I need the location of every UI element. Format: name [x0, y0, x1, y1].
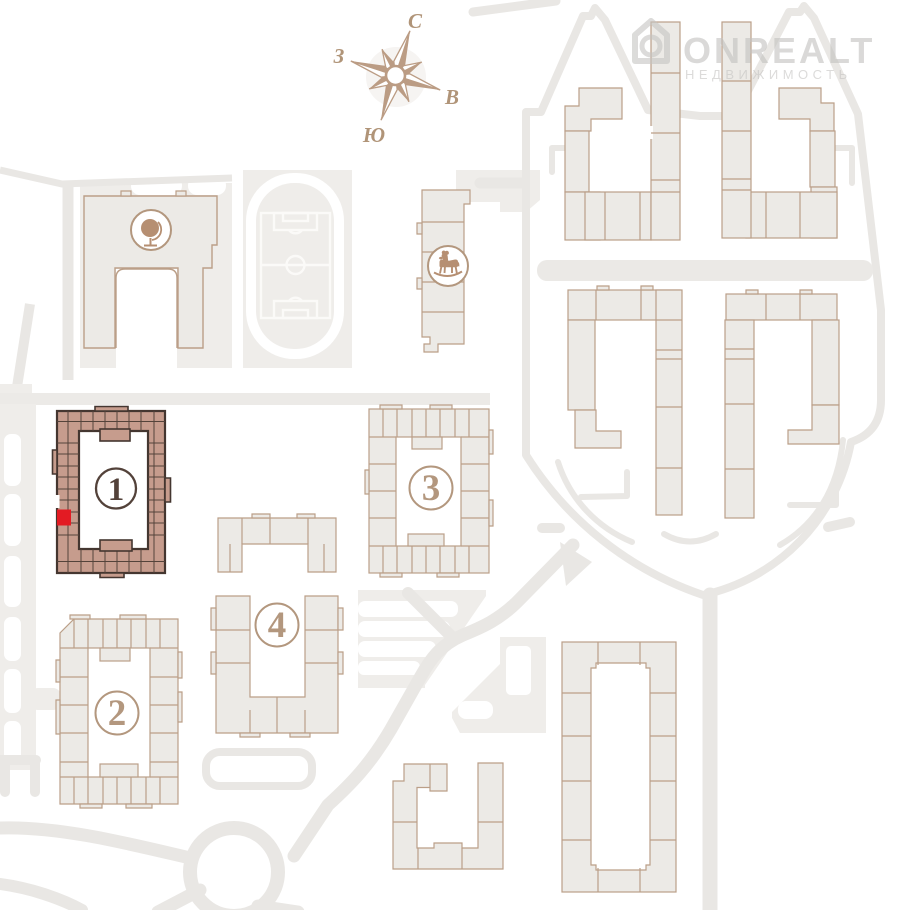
svg-text:Ю: Ю: [362, 123, 385, 147]
svg-text:4: 4: [268, 605, 287, 646]
svg-text:В: В: [444, 85, 459, 109]
svg-text:НЕДВИЖИМОСТЬ: НЕДВИЖИМОСТЬ: [685, 67, 852, 82]
svg-text:3: 3: [422, 468, 441, 509]
svg-text:З: З: [333, 44, 345, 68]
svg-text:ONREALT: ONREALT: [683, 30, 875, 71]
svg-text:1: 1: [108, 472, 125, 508]
svg-text:2: 2: [108, 693, 127, 734]
svg-text:С: С: [408, 9, 423, 33]
